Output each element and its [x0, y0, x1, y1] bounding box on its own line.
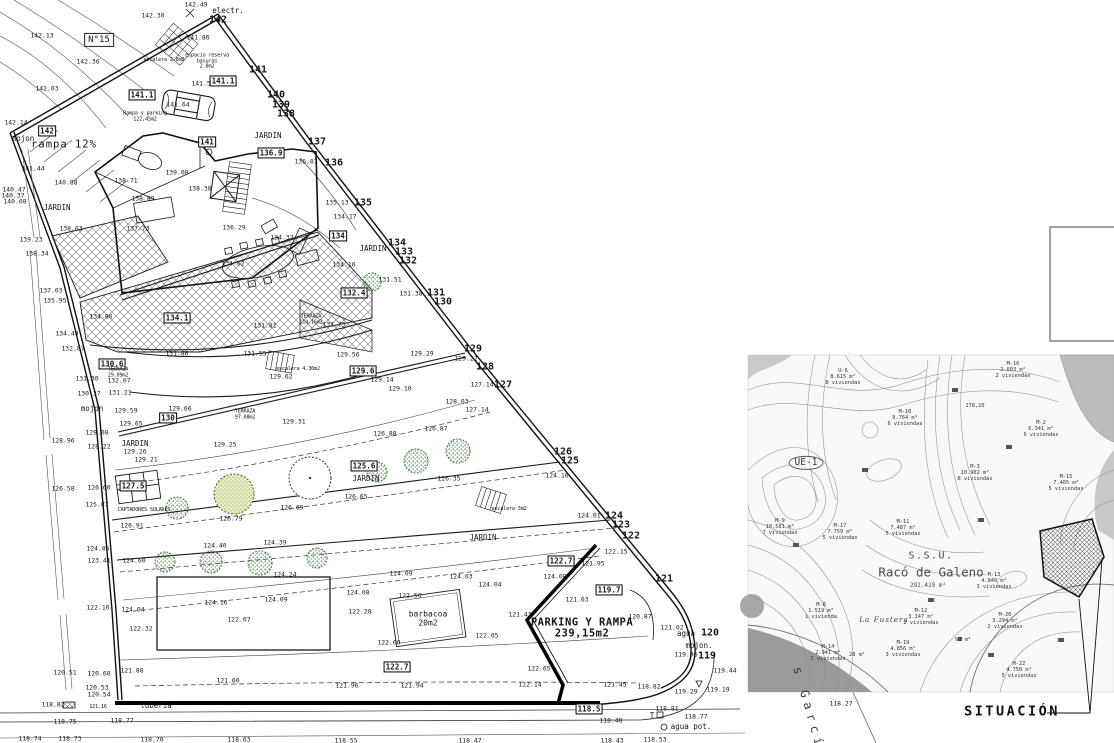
situation-map [740, 355, 1114, 713]
legend-box [1050, 227, 1114, 341]
site-plan-drawing: 142.13N°15142.36142.03142.14142.30142.49… [0, 0, 1114, 743]
parcel-linework [0, 0, 876, 743]
plan-linework [0, 0, 1114, 743]
